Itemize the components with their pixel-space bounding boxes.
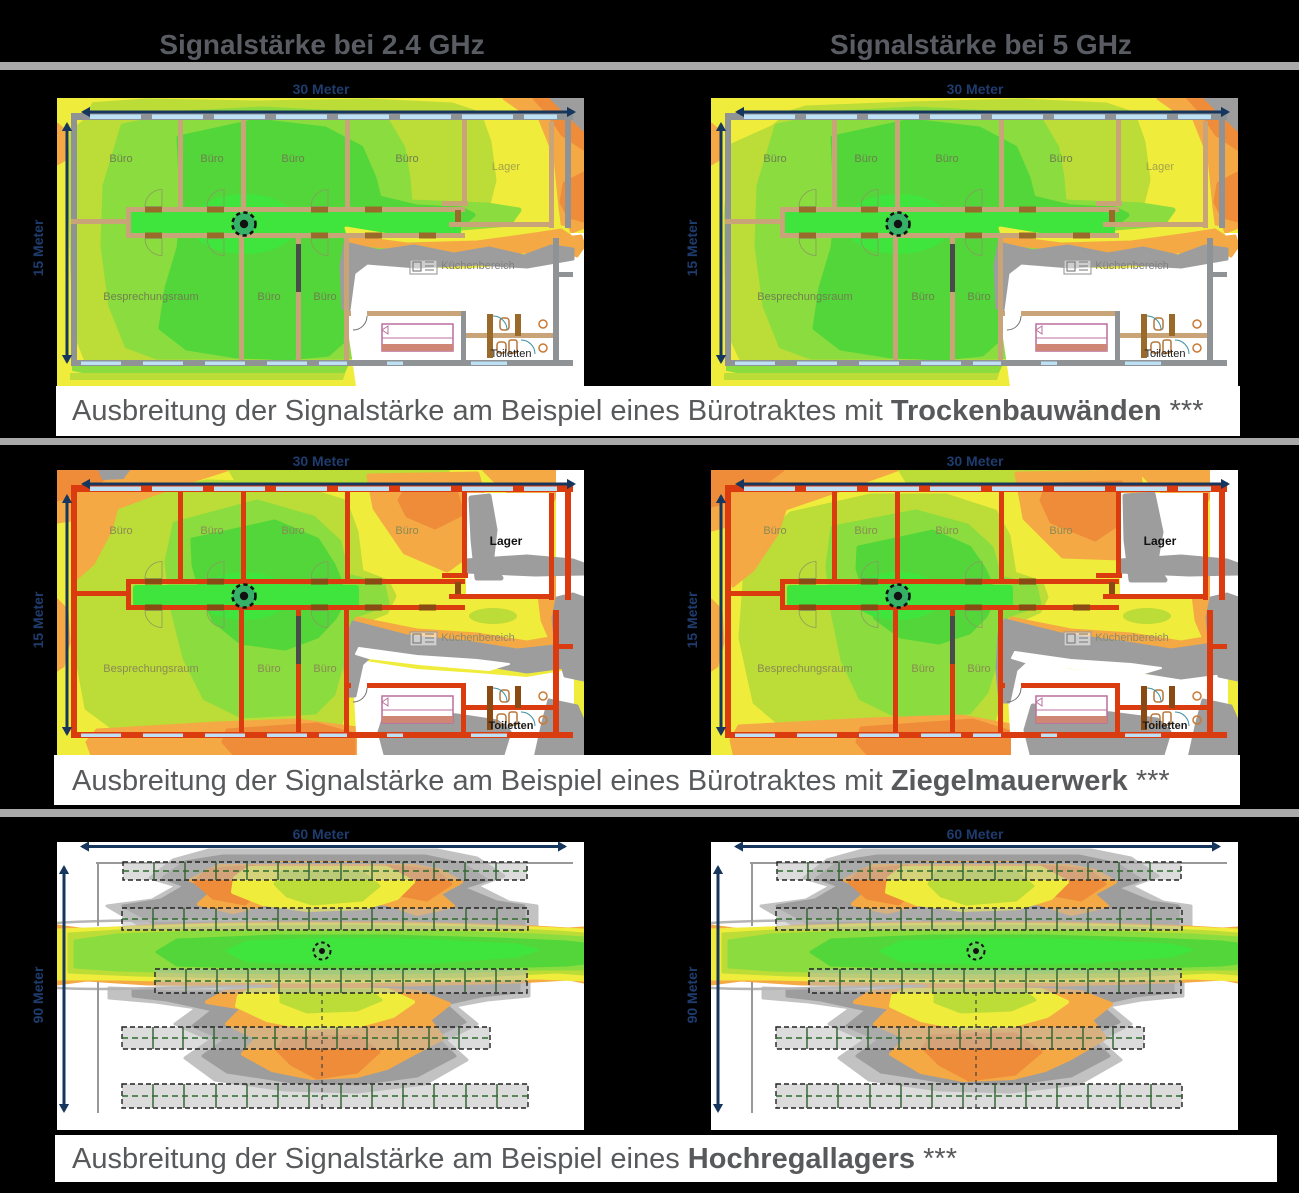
svg-text:Küchenbereich: Küchenbereich [441, 260, 514, 272]
svg-text:Büro: Büro [200, 525, 223, 537]
svg-text:Signalstärke bei 2.4 GHz: Signalstärke bei 2.4 GHz [159, 29, 484, 60]
svg-text:Büro: Büro [109, 525, 132, 537]
svg-text:Büro: Büro [763, 525, 786, 537]
svg-text:Küchenbereich: Küchenbereich [1095, 632, 1168, 644]
svg-text:15 Meter: 15 Meter [684, 591, 700, 648]
svg-text:Büro: Büro [1049, 153, 1072, 165]
svg-text:Büro: Büro [935, 153, 958, 165]
svg-text:Büro: Büro [109, 153, 132, 165]
svg-text:Besprechungsraum: Besprechungsraum [757, 663, 852, 675]
svg-text:Lager: Lager [1146, 161, 1174, 173]
svg-text:30 Meter: 30 Meter [947, 453, 1004, 469]
svg-text:Ausbreitung der Signalstärke a: Ausbreitung der Signalstärke am Beispiel… [72, 765, 1170, 797]
svg-text:Büro: Büro [911, 663, 934, 675]
svg-text:Toiletten: Toiletten [1142, 720, 1187, 732]
svg-text:Büro: Büro [967, 663, 990, 675]
svg-text:Küchenbereich: Küchenbereich [441, 632, 514, 644]
svg-text:Büro: Büro [313, 291, 336, 303]
svg-text:Büro: Büro [935, 525, 958, 537]
svg-text:60 Meter: 60 Meter [947, 826, 1004, 842]
svg-text:Büro: Büro [967, 291, 990, 303]
svg-text:90 Meter: 90 Meter [684, 966, 700, 1023]
svg-text:30 Meter: 30 Meter [947, 81, 1004, 97]
svg-text:Lager: Lager [490, 534, 523, 548]
svg-text:Büro: Büro [200, 153, 223, 165]
svg-text:Besprechungsraum: Besprechungsraum [103, 291, 198, 303]
svg-text:30 Meter: 30 Meter [293, 81, 350, 97]
svg-text:30 Meter: 30 Meter [293, 453, 350, 469]
svg-text:Büro: Büro [763, 153, 786, 165]
svg-text:Büro: Büro [281, 525, 304, 537]
svg-text:Büro: Büro [854, 525, 877, 537]
svg-text:15 Meter: 15 Meter [684, 219, 700, 276]
svg-text:Küchenbereich: Küchenbereich [1095, 260, 1168, 272]
svg-text:Ausbreitung der Signalstärke a: Ausbreitung der Signalstärke am Beispiel… [72, 1143, 957, 1175]
svg-text:15 Meter: 15 Meter [30, 591, 46, 648]
svg-text:60 Meter: 60 Meter [293, 826, 350, 842]
svg-text:Lager: Lager [1144, 534, 1177, 548]
svg-text:Toiletten: Toiletten [1145, 348, 1186, 360]
svg-text:Büro: Büro [257, 663, 280, 675]
svg-text:Büro: Büro [911, 291, 934, 303]
svg-text:Toiletten: Toiletten [491, 348, 532, 360]
svg-text:Büro: Büro [1049, 525, 1072, 537]
svg-text:90 Meter: 90 Meter [30, 966, 46, 1023]
svg-text:Lager: Lager [492, 161, 520, 173]
svg-text:Büro: Büro [395, 153, 418, 165]
svg-text:15 Meter: 15 Meter [30, 219, 46, 276]
svg-text:Signalstärke bei 5 GHz: Signalstärke bei 5 GHz [830, 29, 1132, 60]
svg-text:Besprechungsraum: Besprechungsraum [757, 291, 852, 303]
svg-text:Besprechungsraum: Besprechungsraum [103, 663, 198, 675]
svg-text:Büro: Büro [854, 153, 877, 165]
svg-text:Ausbreitung der Signalstärke a: Ausbreitung der Signalstärke am Beispiel… [72, 395, 1204, 427]
svg-text:Toiletten: Toiletten [488, 720, 533, 732]
svg-text:Büro: Büro [281, 153, 304, 165]
svg-text:Büro: Büro [395, 525, 418, 537]
svg-text:Büro: Büro [313, 663, 336, 675]
svg-text:Büro: Büro [257, 291, 280, 303]
